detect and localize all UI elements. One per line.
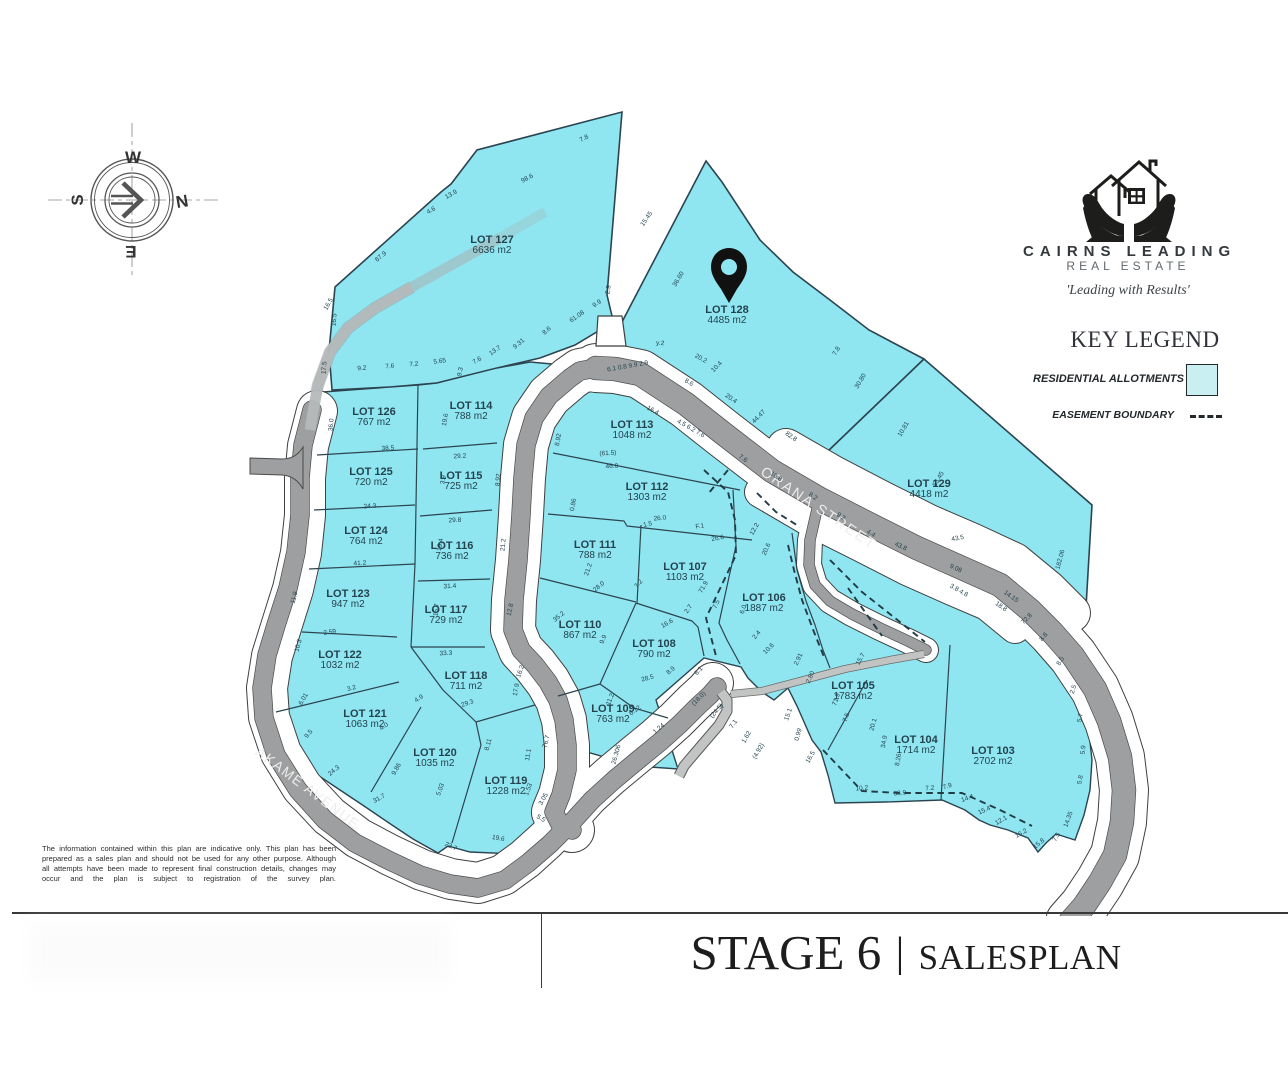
svg-text:E: E bbox=[125, 242, 136, 261]
svg-text:(4.92): (4.92) bbox=[751, 742, 766, 760]
svg-text:5.9: 5.9 bbox=[1080, 745, 1088, 755]
svg-text:1.62: 1.62 bbox=[741, 730, 754, 745]
svg-text:790 m2: 790 m2 bbox=[637, 649, 671, 660]
svg-text:720 m2: 720 m2 bbox=[354, 477, 388, 488]
svg-text:788 m2: 788 m2 bbox=[578, 550, 612, 561]
svg-text:41.2: 41.2 bbox=[353, 560, 366, 568]
svg-text:7.6: 7.6 bbox=[385, 363, 395, 371]
svg-text:725 m2: 725 m2 bbox=[444, 481, 478, 492]
svg-text:2.9: 2.9 bbox=[604, 284, 613, 294]
svg-text:1887 m2: 1887 m2 bbox=[745, 603, 784, 614]
svg-text:947 m2: 947 m2 bbox=[331, 599, 365, 610]
svg-text:764 m2: 764 m2 bbox=[349, 536, 383, 547]
svg-text:17.5: 17.5 bbox=[320, 361, 328, 375]
svg-text:9.2: 9.2 bbox=[357, 365, 367, 373]
svg-text:y.2: y.2 bbox=[656, 340, 665, 348]
svg-text:763 m2: 763 m2 bbox=[596, 714, 630, 725]
svg-text:0.99: 0.99 bbox=[794, 727, 804, 741]
svg-text:736 m2: 736 m2 bbox=[435, 551, 469, 562]
svg-text:711 m2: 711 m2 bbox=[450, 681, 483, 692]
svg-text:7.2: 7.2 bbox=[925, 785, 935, 793]
svg-text:46.0: 46.0 bbox=[605, 463, 618, 471]
svg-text:16.5: 16.5 bbox=[805, 750, 818, 765]
svg-text:24.3: 24.3 bbox=[363, 503, 376, 511]
svg-text:2702 m2: 2702 m2 bbox=[974, 756, 1013, 767]
svg-text:29.2: 29.2 bbox=[453, 453, 466, 461]
svg-text:15.1: 15.1 bbox=[783, 707, 794, 722]
svg-text:7.1: 7.1 bbox=[728, 718, 739, 730]
svg-text:788 m2: 788 m2 bbox=[454, 411, 488, 422]
svg-text:1303 m2: 1303 m2 bbox=[628, 492, 667, 503]
svg-text:38.5: 38.5 bbox=[381, 445, 394, 453]
svg-text:4418 m2: 4418 m2 bbox=[910, 489, 949, 500]
svg-text:F.1: F.1 bbox=[695, 522, 705, 530]
svg-text:1035 m2: 1035 m2 bbox=[416, 758, 455, 769]
svg-text:S: S bbox=[68, 194, 87, 205]
svg-text:31.4: 31.4 bbox=[443, 583, 456, 591]
svg-text:1032 m2: 1032 m2 bbox=[321, 660, 360, 671]
svg-text:1228 m2: 1228 m2 bbox=[487, 786, 526, 797]
svg-text:7.2: 7.2 bbox=[409, 361, 419, 369]
svg-text:15.7: 15.7 bbox=[432, 603, 440, 617]
svg-text:16.5: 16.5 bbox=[330, 313, 338, 327]
svg-text:33.3: 33.3 bbox=[439, 650, 452, 658]
svg-text:767 m2: 767 m2 bbox=[357, 417, 391, 428]
svg-text:36.0: 36.0 bbox=[327, 418, 335, 432]
svg-text:38.9: 38.9 bbox=[893, 789, 907, 797]
svg-text:W: W bbox=[125, 148, 142, 167]
svg-text:15.45: 15.45 bbox=[639, 210, 654, 228]
svg-text:1048 m2: 1048 m2 bbox=[613, 430, 652, 441]
svg-text:(61.5): (61.5) bbox=[599, 450, 616, 458]
svg-text:1103 m2: 1103 m2 bbox=[666, 572, 705, 583]
svg-text:867 m2: 867 m2 bbox=[563, 630, 597, 641]
svg-text:4485 m2: 4485 m2 bbox=[708, 315, 747, 326]
svg-text:26.0: 26.0 bbox=[653, 514, 667, 522]
svg-text:21.2: 21.2 bbox=[499, 538, 507, 552]
svg-text:N: N bbox=[174, 191, 189, 212]
svg-text:10.2: 10.2 bbox=[855, 784, 869, 792]
svg-text:8.92: 8.92 bbox=[494, 473, 502, 487]
svg-text:6636 m2: 6636 m2 bbox=[473, 245, 512, 256]
svg-text:29.8: 29.8 bbox=[448, 517, 461, 525]
